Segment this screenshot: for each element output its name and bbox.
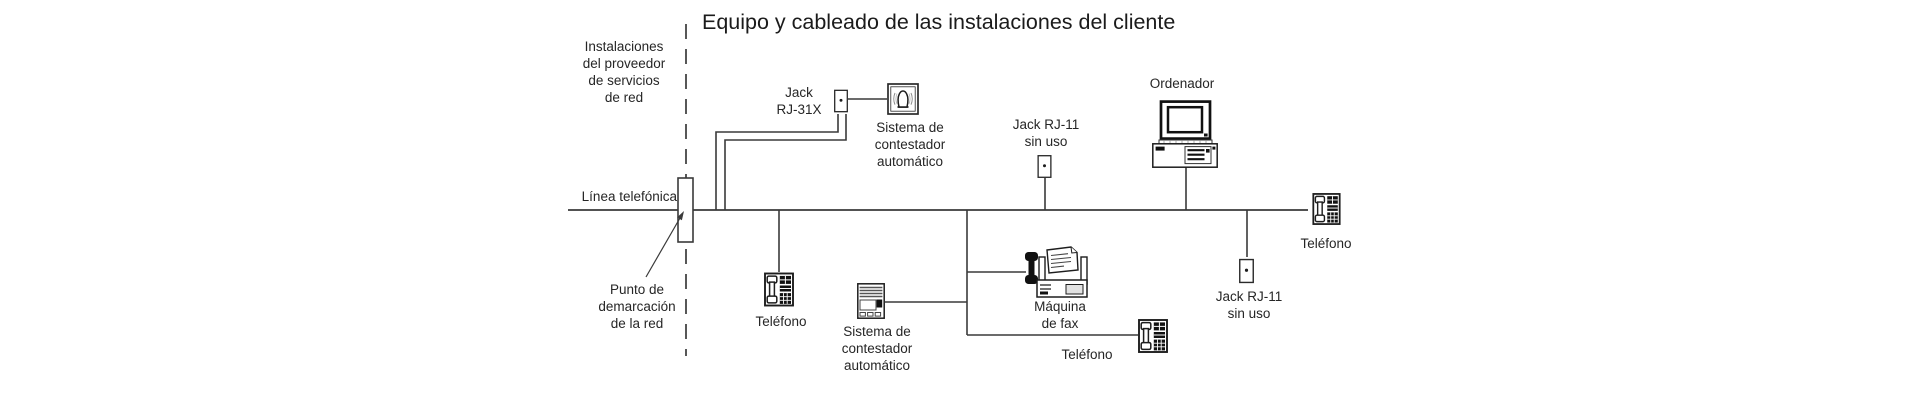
phone-right-icon: [1313, 194, 1339, 224]
provider-premises-label: Instalaciones del proveedor de servicios…: [549, 38, 699, 106]
jack-rj11-bottom-icon: [1240, 260, 1254, 283]
answering-machine-bottom-icon: [858, 284, 884, 318]
wiring-layer: [0, 0, 1920, 400]
rj31x-wire-inner: [725, 114, 846, 210]
phone-line-label: Línea telefónica: [527, 188, 677, 205]
answering-system-bottom-label: Sistema de contestador automático: [802, 323, 952, 374]
fax-machine-label: Máquina de fax: [985, 298, 1135, 332]
fax-machine-icon: [1025, 247, 1087, 297]
demarcation-point-label: Punto de demarcación de la red: [562, 281, 712, 332]
phone-left-icon: [765, 274, 793, 306]
phone-middle-label: Teléfono: [1012, 346, 1162, 363]
jack-rj11-top-label: Jack RJ-11 sin uso: [971, 116, 1121, 150]
answering-system-top-label: Sistema de contestador automático: [835, 119, 985, 170]
jack-rj11-top-icon: [1038, 156, 1051, 178]
demarcation-arrow: [646, 211, 684, 277]
phone-right-label: Teléfono: [1251, 235, 1401, 252]
computer-label: Ordenador: [1107, 75, 1257, 92]
rj31x-wire-outer: [716, 114, 838, 210]
computer-icon: [1153, 102, 1217, 168]
jack-rj31x-label: Jack RJ-31X: [724, 84, 874, 118]
diagram-canvas: Equipo y cableado de las instalaciones d…: [0, 0, 1920, 400]
answering-machine-top-icon: [888, 84, 918, 114]
jack-rj11-bottom-label: Jack RJ-11 sin uso: [1174, 288, 1324, 322]
diagram-title: Equipo y cableado de las instalaciones d…: [702, 9, 1175, 35]
demarcation-box: [678, 178, 693, 242]
